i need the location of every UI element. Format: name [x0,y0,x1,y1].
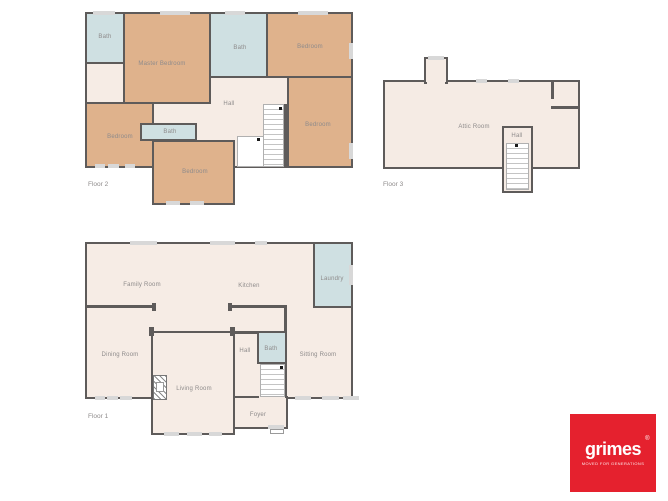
agency-logo-tagline: MOVED FOR GENERATIONS [582,461,645,466]
door-step [270,429,284,434]
wall-end-cap [228,303,232,311]
window [349,265,353,285]
window [120,396,132,400]
room-label-hall: Hall [239,348,250,354]
room-label-living-room: Living Room [176,386,212,392]
room-label-bath: Bath [264,346,277,352]
room-label-laundry: Laundry [320,276,343,282]
window [164,432,179,436]
window [187,432,202,436]
wall-segment [233,331,259,334]
room-label-dining-room: Dining Room [102,352,139,358]
window [209,432,222,436]
agency-brand-text: grimes [585,439,641,459]
window [343,396,359,400]
floorplan-canvas: Bath Master Bedroom Bath Bedroom Bedroom… [0,0,668,501]
window [210,241,235,245]
floor1-plan: Family Room Kitchen Laundry Dining Room … [0,0,668,501]
window [130,241,157,245]
wall-end-cap [152,303,156,311]
room-label-family-room: Family Room [123,282,161,288]
room-label-kitchen: Kitchen [238,283,259,289]
window [295,396,311,400]
floor1-label: Floor 1 [88,413,108,420]
agency-logo-brand: grimes® [585,440,641,458]
agency-logo: grimes® MOVED FOR GENERATIONS [570,414,656,492]
wall-end-cap [149,327,154,336]
window [322,396,339,400]
wall-segment [230,305,287,308]
stair-direction-dot [280,366,283,369]
room-label-foyer: Foyer [250,412,266,418]
fireplace-hearth [156,382,164,392]
window [95,396,105,400]
wall-segment [87,305,155,308]
registered-trademark-icon: ® [645,436,649,442]
window [255,241,267,245]
floor1-laundry [313,242,353,308]
window [107,396,118,400]
room-label-sitting-room: Sitting Room [300,352,337,358]
